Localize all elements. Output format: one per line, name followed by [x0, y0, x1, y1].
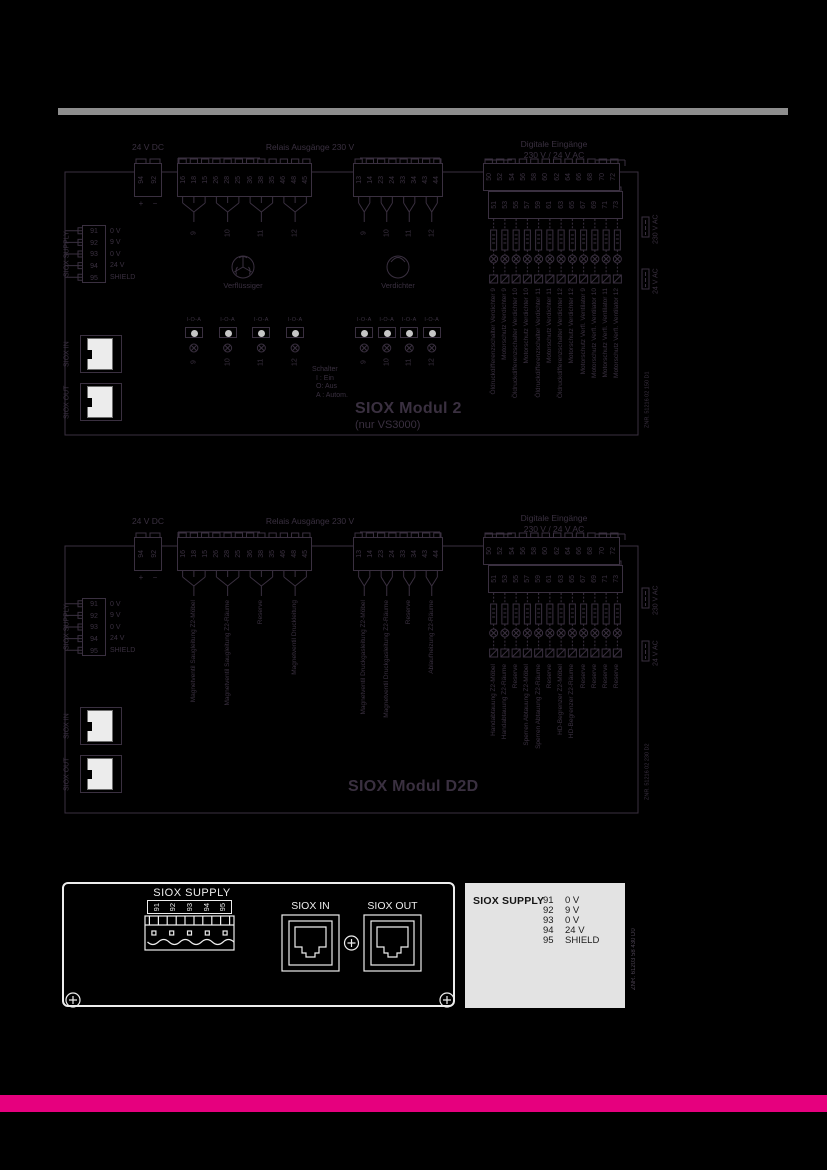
rj45-jack-outer [282, 915, 339, 971]
input-module-box [502, 604, 508, 624]
input-lamp-cross [536, 630, 541, 635]
terminal-number: 48 [291, 176, 298, 184]
switch-output-number: 10 [382, 356, 392, 369]
digital-input-label: Öldruckdifferenzschalter Verdichter 9 [490, 288, 498, 428]
input-module-box [547, 230, 553, 250]
siox-supply-block: 9192939495 [82, 225, 106, 283]
terminal-number: 59 [535, 201, 542, 209]
fan-label: Verflüssiger [203, 281, 283, 290]
input-contact-slash [557, 275, 565, 283]
terminal-number: 33 [400, 176, 407, 184]
relay-terminal-block-2-terminal: 33 [398, 164, 409, 196]
screw-cross [443, 996, 451, 1004]
input-contact-slash [535, 649, 543, 657]
znr-number: ZNR. 51216 02 230 D2 [643, 734, 652, 810]
digital-terminal-block-bottom-terminal: 51 [489, 566, 500, 592]
digital-input-label: Reserve [546, 664, 554, 804]
supply-plug-clamp [221, 916, 230, 925]
terminal-number: 16 [180, 176, 187, 184]
siox-supply-legend-box: SIOX SUPPLY910 V929 V930 V9424 V95SHIELD [465, 883, 625, 1008]
digital-input-label: Sperren Abtauung Z2-Räume [535, 664, 543, 804]
terminal-number: 57 [524, 201, 531, 209]
relay-terminal-block-2-terminal: 14 [365, 538, 376, 570]
siox-in-port[interactable] [80, 707, 122, 745]
supply-terminal-value: 0 V [110, 251, 121, 258]
manual-switch[interactable] [252, 327, 270, 338]
digital-terminal-block-top-terminal: 56 [518, 538, 529, 564]
relay-outputs-header: Relais Ausgänge 230 V [248, 142, 372, 152]
switch-ioa-label: I-O-A [249, 317, 273, 323]
terminal-number: 53 [502, 201, 509, 209]
relay-terminal-block-2-terminal: 33 [398, 538, 409, 570]
input-module-box [491, 604, 497, 624]
switch-ioa-label: I-O-A [216, 317, 240, 323]
digital-input-label: Motorschutz Verdichter 12 [568, 288, 576, 428]
relay-contact [183, 197, 206, 222]
digital-input-label: Reserve [512, 664, 520, 804]
relay-contact [359, 197, 370, 222]
relay-contact [284, 197, 307, 222]
digital-terminal-block-bottom-terminal: 67 [578, 192, 589, 218]
relay-terminal-block-1: 161815262825363835464845 [177, 537, 312, 571]
digital-terminal-block-top-terminal: 58 [529, 164, 540, 190]
switch-ioa-label: I-O-A [182, 317, 206, 323]
terminal-number: 58 [531, 547, 538, 555]
digital-terminal-block-bottom-terminal: 69 [589, 566, 600, 592]
switch-knob [361, 330, 368, 337]
siox-supply-label: SIOX SUPPLY [61, 598, 73, 656]
input-lamp-cross [559, 630, 564, 635]
digital-input-label: Öldruckdifferenzschalter Verdichter 12 [557, 288, 565, 428]
relay-output-label: Magnetventil Druckgasleitung Z2-Möbel [360, 600, 368, 725]
input-lamp-cross [592, 256, 597, 261]
supply-plug-clamp [149, 916, 158, 925]
terminal-number: 92 [151, 176, 158, 184]
relay-terminal-block-1-terminal: 25 [233, 164, 244, 196]
panel-siox-out-label: SIOX OUT [364, 900, 421, 912]
terminal-number: 35 [269, 550, 276, 558]
siox-modul-2-diagram: SIOX Modul 2 (nur VS3000) 24 V DCRelais … [60, 138, 680, 443]
input-lamp-cross [615, 630, 620, 635]
terminal-number: 52 [497, 547, 504, 555]
digital-terminal-block-top-terminal: 70 [597, 538, 608, 564]
input-module-marks [548, 235, 551, 243]
manual-switch[interactable] [286, 327, 304, 338]
input-contact-slash [490, 649, 498, 657]
supply-plug-pin [205, 931, 209, 935]
terminal-number: 66 [576, 173, 583, 181]
input-lamp-cross [570, 256, 575, 261]
manual-switch[interactable] [185, 327, 203, 338]
digital-input-label: Handabtauung Z2-Räume [501, 664, 509, 804]
module2-title: SIOX Modul 2 [355, 400, 462, 418]
dc-terminal-block: 9492 [134, 163, 162, 197]
relay-terminal-block-2: 1314232433344344 [353, 537, 443, 571]
input-lamp-cross [592, 630, 597, 635]
relay-terminal-block-1-terminal: 35 [267, 164, 278, 196]
siox-supply-block: 9192939495 [82, 598, 106, 656]
supply-terminal-value: 0 V [110, 624, 121, 631]
terminal-number: 15 [202, 176, 209, 184]
terminal-number: 59 [535, 575, 542, 583]
digital-terminal-block-bottom-terminal: 73 [611, 566, 622, 592]
siox-out-port[interactable] [80, 383, 122, 421]
supply-terminal-number: 92 [83, 238, 105, 250]
siox-out-label: SIOX OUT [61, 755, 73, 793]
input-lamp-cross [491, 630, 496, 635]
input-contact-slash [602, 275, 610, 283]
input-module-box [558, 604, 564, 624]
input-module-marks [605, 609, 608, 617]
switch-output-number: 12 [427, 356, 437, 369]
input-module-box [491, 230, 497, 250]
digital-terminal-block-top-terminal: 72 [608, 164, 619, 190]
digital-input-label: Reserve [613, 664, 621, 804]
input-module-box [614, 230, 620, 250]
terminal-number: 73 [613, 201, 620, 209]
terminal-number: 63 [558, 575, 565, 583]
input-module-box [524, 230, 530, 250]
relay-terminal-block-2-terminal: 14 [365, 164, 376, 196]
relay-terminal-block-2-terminal: 43 [420, 538, 431, 570]
relay-contact [426, 571, 437, 596]
siox-out-latch-slot [87, 770, 92, 779]
relay-contact [250, 571, 273, 596]
relay-output-label: Ablaufheizung Z2-Räume [428, 600, 436, 725]
input-contact-slash [568, 275, 576, 283]
siox-modul-d2d-diagram: SIOX Modul D2D 24 V DCRelais Ausgänge 23… [60, 512, 680, 822]
input-module-box [592, 604, 598, 624]
voltage-note-24: 24 V AC [650, 630, 662, 676]
relay-contact [381, 571, 392, 596]
input-module-marks [616, 235, 619, 243]
terminal-number: 55 [513, 201, 520, 209]
terminal-number: 43 [422, 176, 429, 184]
input-lamp-cross [547, 256, 552, 261]
digital-input-label: Reserve [580, 664, 588, 804]
supply-plug-pin [170, 931, 174, 935]
switch-legend-line: I : Ein [316, 375, 334, 382]
relay-terminal-block-2-terminal: 23 [376, 164, 387, 196]
terminal-number: 15 [202, 550, 209, 558]
terminal-number: 71 [602, 201, 609, 209]
input-lamp-cross [514, 256, 519, 261]
relay-terminal-block-1-terminal: 45 [300, 164, 311, 196]
input-module-box [513, 604, 519, 624]
supply-terminal-value: 0 V [110, 228, 121, 235]
digital-terminal-block-top-terminal: 50 [484, 538, 495, 564]
led-cross [429, 345, 434, 350]
digital-terminal-block-bottom-terminal: 59 [533, 566, 544, 592]
terminal-number: 36 [247, 550, 254, 558]
voltage-note-230: 230 V AC [650, 206, 662, 252]
module2-subtitle: (nur VS3000) [355, 419, 420, 431]
terminal-number: 26 [213, 550, 220, 558]
terminal-number: 18 [191, 176, 198, 184]
input-contact-slash [512, 275, 520, 283]
digital-terminal-block-top-terminal: 56 [518, 164, 529, 190]
digital-terminal-block-top-terminal: 64 [563, 164, 574, 190]
relay-contact [183, 571, 206, 596]
terminal-number: 14 [367, 176, 374, 184]
relay-output-number: 10 [223, 226, 233, 240]
input-contact-slash [568, 649, 576, 657]
legend-terminal-value: SHIELD [565, 935, 599, 946]
digital-input-label: Motorschutz Verdichter 10 [523, 288, 531, 428]
relay-terminal-block-1-terminal: 48 [289, 164, 300, 196]
digital-terminal-block-bottom-terminal: 65 [567, 192, 578, 218]
legend-terminal-number: 95 [543, 935, 554, 946]
input-lamp-cross [604, 630, 609, 635]
siox-in-connector [87, 338, 113, 370]
digital-terminal-block-bottom-terminal: 55 [511, 192, 522, 218]
dc-terminal-block-terminal: 94 [135, 538, 148, 570]
terminal-number: 68 [587, 173, 594, 181]
switch-ioa-label: I-O-A [283, 317, 307, 323]
terminal-number: 58 [531, 173, 538, 181]
supply-terminal-number: 91 [83, 599, 105, 611]
dc-supply-header: 24 V DC [118, 516, 178, 526]
siox-supply-label: SIOX SUPPLY [61, 225, 73, 283]
relay-terminal-block-1-terminal: 16 [178, 538, 189, 570]
input-contact-slash [602, 649, 610, 657]
input-module-marks [593, 235, 596, 243]
terminal-number: 34 [411, 176, 418, 184]
digital-terminal-block-top-terminal: 72 [608, 538, 619, 564]
input-module-marks [582, 609, 585, 617]
terminal-number: 51 [491, 575, 498, 583]
input-module-marks [571, 609, 574, 617]
terminal-number: 46 [280, 550, 287, 558]
terminal-number: 73 [613, 575, 620, 583]
switch-knob [258, 330, 265, 337]
terminal-number: 50 [486, 173, 493, 181]
voltage-note-24: 24 V AC [650, 258, 662, 304]
relay-terminal-block-1-terminal: 38 [256, 538, 267, 570]
input-contact-slash [523, 649, 531, 657]
dc-minus-sign: − [148, 199, 162, 208]
relay-terminal-block-2-terminal: 43 [420, 164, 431, 196]
relay-terminal-block-1-terminal: 45 [300, 538, 311, 570]
input-module-box [569, 230, 575, 250]
terminal-number: 92 [151, 550, 158, 558]
terminal-number: 36 [247, 176, 254, 184]
switch-output-number: 12 [290, 356, 300, 369]
digital-input-label: Motorschutz Verfl. Ventilator 11 [602, 288, 610, 428]
relay-output-number: 12 [290, 226, 300, 240]
input-contact-slash [613, 649, 621, 657]
input-module-marks [526, 609, 529, 617]
siox-out-latch-slot [87, 398, 92, 407]
digital-terminal-block-top-terminal: 66 [574, 164, 585, 190]
dc-terminal-block-terminal: 92 [148, 164, 161, 196]
supply-terminal-number: 95 [83, 272, 105, 284]
digital-terminal-block-top-terminal: 62 [552, 538, 563, 564]
input-module-box [513, 230, 519, 250]
digital-terminal-block-top-terminal: 68 [585, 164, 596, 190]
terminal-number: 24 [389, 176, 396, 184]
supply-terminal-value: 24 V [110, 635, 124, 642]
fan-blades [234, 257, 251, 275]
terminal-number: 14 [367, 550, 374, 558]
relay-terminal-block-1-terminal: 18 [189, 538, 200, 570]
input-lamp-cross [502, 630, 507, 635]
terminal-number: 38 [258, 176, 265, 184]
terminal-number: 70 [599, 547, 606, 555]
input-lamp-cross [536, 256, 541, 261]
siox-out-connector [87, 386, 113, 418]
digital-terminal-block-top-terminal: 58 [529, 538, 540, 564]
supply-plug-wave [148, 940, 234, 945]
input-module-box [536, 604, 542, 624]
relay-terminal-block-1-terminal: 35 [267, 538, 278, 570]
relay-output-label: Magnetventil Druckgasleitung Z2-Räume [383, 600, 391, 725]
terminal-number: 38 [258, 550, 265, 558]
input-module-marks [548, 609, 551, 617]
supply-terminal-number: 93 [83, 249, 105, 261]
input-module-marks [503, 609, 506, 617]
switch-output-number: 11 [404, 356, 414, 369]
terminal-number: 71 [602, 575, 609, 583]
terminal-number: 94 [138, 550, 145, 558]
terminal-number: 46 [280, 176, 287, 184]
digital-terminal-block-bottom-terminal: 59 [533, 192, 544, 218]
input-lamp-cross [559, 256, 564, 261]
switch-legend-line: A : Autom. [316, 392, 348, 399]
input-module-marks [537, 609, 540, 617]
digital-input-label: Handabtauung Z2-Möbel [490, 664, 498, 804]
terminal-number: 45 [302, 550, 309, 558]
input-module-box [547, 604, 553, 624]
input-module-marks [560, 609, 563, 617]
relay-contact [250, 197, 273, 222]
digital-input-label: Motorschutz Verfl. Ventilator 12 [613, 288, 621, 428]
input-contact-slash [557, 649, 565, 657]
siox-connector-panel: SIOX SUPPLY9192939495SIOX INSIOX OUT [62, 882, 455, 1007]
terminal-number: 62 [554, 547, 561, 555]
digital-terminal-block-top-terminal: 70 [597, 164, 608, 190]
digital-terminal-block-top-terminal: 52 [495, 164, 506, 190]
input-lamp-cross [615, 256, 620, 261]
input-contact-slash [512, 649, 520, 657]
input-module-box [524, 604, 530, 624]
input-lamp-cross [491, 256, 496, 261]
digital-terminal-block-bottom-terminal: 57 [522, 192, 533, 218]
digital-terminal-block-bottom-terminal: 57 [522, 566, 533, 592]
digital-input-label: Reserve [602, 664, 610, 804]
relay-contact [359, 571, 370, 596]
dc-supply-header: 24 V DC [118, 142, 178, 152]
input-contact-slash [580, 275, 588, 283]
input-module-box [581, 604, 587, 624]
input-module-marks [515, 235, 518, 243]
terminal-number: 72 [610, 173, 617, 181]
manual-switch[interactable] [219, 327, 237, 338]
input-module-box [536, 230, 542, 250]
input-contact-slash [523, 275, 531, 283]
siox-in-port[interactable] [80, 335, 122, 373]
switch-output-number: 9 [359, 356, 369, 369]
input-module-marks [492, 235, 495, 243]
relay-terminal-block-1-terminal: 15 [200, 538, 211, 570]
terminal-number: 24 [389, 550, 396, 558]
digital-input-label: Motorschutz Verfl. Ventilator 9 [580, 288, 588, 428]
input-contact-slash [546, 649, 554, 657]
digital-input-label: HD-Begrenzer Z2-Räume [568, 664, 576, 804]
terminal-number: 66 [576, 547, 583, 555]
siox-out-connector [87, 758, 113, 790]
relay-terminal-block-2-terminal: 44 [431, 538, 442, 570]
relay-terminal-block-2-terminal: 13 [354, 164, 365, 196]
terminal-number: 57 [524, 575, 531, 583]
relay-terminal-block-2-terminal: 24 [387, 538, 398, 570]
terminal-number: 54 [509, 173, 516, 181]
manual-switch[interactable] [355, 327, 373, 338]
compressor-icon [387, 256, 409, 278]
led-cross [362, 345, 367, 350]
relay-terminal-block-1-terminal: 36 [244, 164, 255, 196]
znr-number: ZNR. 51216 02 150 D1 [643, 368, 652, 432]
digital-terminal-block-bottom-terminal: 61 [544, 566, 555, 592]
digital-terminal-block-bottom-terminal: 63 [555, 192, 566, 218]
voltage-note-230: 230 V AC [650, 577, 662, 623]
screw-cross [69, 996, 77, 1004]
terminal-number: 65 [569, 201, 576, 209]
relay-output-label: Magnetventil Saugleitung Z2-Möbel [190, 600, 198, 725]
digital-terminal-block-bottom-terminal: 61 [544, 192, 555, 218]
siox-out-port[interactable] [80, 755, 122, 793]
relay-terminal-block-1-terminal: 26 [211, 538, 222, 570]
input-module-box [592, 230, 598, 250]
terminal-number: 64 [565, 547, 572, 555]
digital-terminal-block-bottom: 515355575961636567697173 [488, 565, 623, 593]
relay-output-number: 9 [359, 226, 369, 240]
manual-switch[interactable] [378, 327, 396, 338]
rj45-socket-icon [377, 927, 408, 957]
terminal-number: 70 [599, 173, 606, 181]
input-module-box [614, 604, 620, 624]
terminal-number: 67 [580, 201, 587, 209]
relay-terminal-block-1-terminal: 48 [289, 538, 300, 570]
relay-terminal-block-1-terminal: 15 [200, 164, 211, 196]
terminal-number: 13 [356, 550, 363, 558]
input-contact-slash [501, 275, 509, 283]
dc-plus-sign: + [134, 199, 148, 208]
terminal-number: 16 [180, 550, 187, 558]
supply-plug-clamp [167, 916, 176, 925]
switch-legend-line: Schalter [312, 366, 338, 373]
input-lamp-cross [525, 256, 530, 261]
supply-terminal-value: 9 V [110, 239, 121, 246]
legend-title: SIOX SUPPLY [473, 895, 544, 907]
terminal-number: 56 [520, 547, 527, 555]
digital-terminal-block-top-terminal: 60 [540, 538, 551, 564]
terminal-number: 28 [224, 550, 231, 558]
rj45-jack-outer [364, 915, 421, 971]
terminal-number: 45 [302, 176, 309, 184]
digital-terminal-block-top-terminal: 50 [484, 164, 495, 190]
terminal-number: 72 [610, 547, 617, 555]
digital-inputs-header-1: Digitale Eingänge [494, 513, 614, 523]
digital-input-label: Öldruckdifferenzschalter Verdichter 10 [512, 288, 520, 428]
compressor-detail [391, 258, 405, 263]
manual-switch[interactable] [400, 327, 418, 338]
manual-switch[interactable] [423, 327, 441, 338]
led-cross [293, 345, 298, 350]
switch-knob [225, 330, 232, 337]
input-module-marks [492, 609, 495, 617]
terminal-number: 48 [291, 550, 298, 558]
